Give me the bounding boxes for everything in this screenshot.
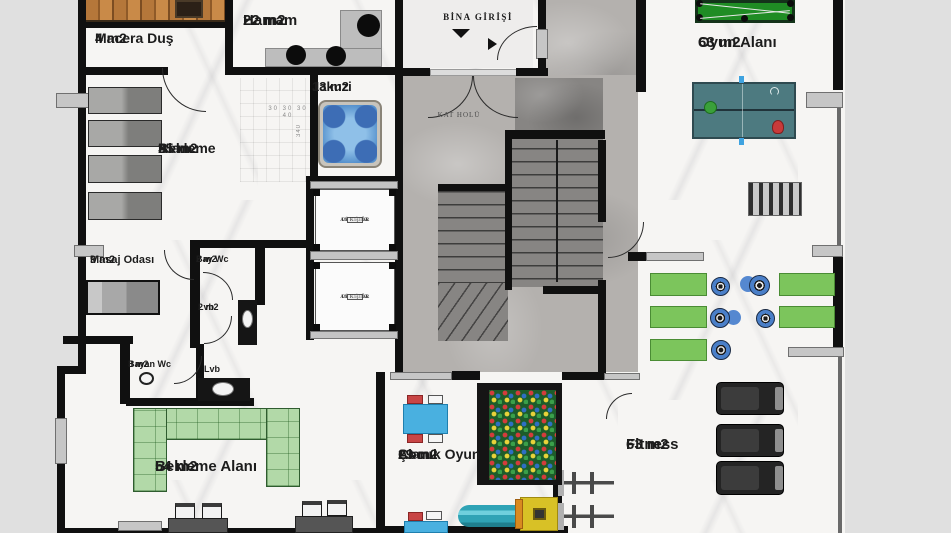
weight-plate	[749, 275, 770, 296]
weight-plate	[710, 308, 730, 328]
chair	[302, 501, 322, 517]
wall	[190, 240, 312, 248]
massage-table	[86, 280, 160, 315]
wall	[598, 140, 606, 222]
wall-post	[389, 189, 396, 196]
gym-machine-bar	[590, 505, 594, 528]
staircase-left-winder	[438, 283, 508, 341]
wall-post	[313, 324, 320, 331]
weight-plate	[711, 277, 730, 296]
window	[788, 347, 844, 357]
chair	[202, 503, 222, 519]
jacuzzi-water	[323, 105, 377, 163]
exercise-mat	[650, 339, 707, 361]
paddle-red-icon	[772, 120, 784, 134]
treadmill-console	[775, 387, 783, 410]
wall	[516, 68, 548, 76]
wall	[255, 245, 265, 305]
spin-icon	[770, 87, 779, 96]
exercise-mat	[650, 273, 707, 296]
treadmill-console	[775, 429, 783, 452]
wall	[225, 67, 403, 75]
billiard-pocket	[787, 14, 794, 21]
treadmill-deck	[721, 387, 759, 410]
window	[390, 372, 452, 380]
wall	[636, 0, 646, 92]
wall	[395, 0, 403, 75]
exercise-mat	[779, 306, 835, 328]
wall	[543, 286, 605, 294]
elevator-door	[310, 331, 398, 339]
lounger	[88, 87, 162, 114]
window	[56, 93, 90, 108]
direction-arrow-icon	[488, 38, 497, 50]
kids-chair-white	[428, 434, 443, 443]
wall	[628, 252, 646, 261]
kids-chair-red	[407, 434, 423, 443]
wall-thin	[838, 357, 842, 533]
kids-chair-red	[408, 512, 423, 521]
door-panel	[536, 29, 548, 59]
gym-machine-bar	[572, 505, 576, 528]
cafe-table	[295, 516, 353, 533]
exercise-mat	[650, 306, 707, 328]
entrance-label: BİNA GİRİŞİ	[426, 12, 530, 22]
sink	[212, 382, 234, 396]
wall	[598, 280, 606, 375]
hamam-basin	[286, 45, 306, 65]
door-panel	[604, 373, 640, 380]
gym-machine	[558, 503, 614, 530]
wall	[833, 257, 843, 347]
kids-chair-white	[426, 511, 442, 520]
door-panel	[812, 245, 843, 257]
kids-table	[403, 404, 448, 434]
wall-post	[389, 244, 396, 251]
wall-post	[389, 324, 396, 331]
dimension-label: 30 30 30 40	[262, 106, 314, 120]
hamam-basin	[357, 14, 380, 37]
hamam-bench-bottom	[265, 48, 382, 67]
pingpong-mark-icon	[739, 138, 744, 145]
window	[806, 92, 843, 108]
chair	[327, 500, 347, 516]
elevator-capacity: 10 Kişilik	[341, 294, 369, 300]
toilet-icon	[139, 372, 154, 385]
wall	[78, 67, 168, 75]
dumbbell-rack	[748, 182, 802, 216]
treadmill-deck	[721, 429, 759, 452]
wall	[225, 0, 233, 75]
wall	[78, 0, 86, 370]
hall-label: KAT HOLÜ	[430, 111, 488, 119]
elevator-door	[310, 251, 398, 260]
treadmill-console	[775, 466, 783, 490]
wall-post	[313, 262, 320, 269]
wall	[507, 130, 605, 139]
cafe-table	[168, 518, 228, 533]
wall	[395, 75, 403, 375]
paddle-green-icon	[704, 101, 717, 114]
sofa-right-arm	[266, 408, 300, 487]
wall-post	[313, 244, 320, 251]
window	[55, 418, 67, 464]
wall	[538, 0, 546, 30]
gym-machine-bar	[572, 472, 576, 494]
wall	[438, 184, 510, 191]
wall-post	[313, 189, 320, 196]
elevator-capacity: 10 Kişilik	[341, 217, 369, 223]
sink	[242, 310, 253, 328]
sofa-left-arm	[133, 408, 167, 492]
floor-plan: DİŞLİSİZ ASANSÖR 10 Kişilik DİŞLİSİZ ASA…	[0, 0, 951, 533]
wall	[452, 371, 480, 380]
lounger	[88, 192, 162, 220]
wall-post	[389, 262, 396, 269]
wall	[562, 372, 604, 380]
exercise-mat	[779, 273, 835, 296]
stair-landing	[515, 78, 603, 135]
chair	[175, 503, 195, 519]
elevator-2: DİŞLİSİZ ASANSÖR 10 Kişilik	[315, 262, 395, 331]
entrance-arrow-icon	[452, 29, 470, 38]
pingpong-center-line	[742, 84, 743, 137]
wall	[833, 0, 843, 90]
wall	[120, 338, 130, 404]
billiard-pocket	[787, 0, 794, 7]
kids-table	[404, 521, 448, 533]
gym-machine	[558, 470, 614, 496]
threshold	[430, 69, 518, 76]
elevator-door	[310, 181, 398, 189]
lounger	[88, 155, 162, 183]
dimension-label: 340	[296, 124, 306, 137]
weight-plate	[711, 340, 731, 360]
slide-platform-step	[515, 499, 523, 529]
staircase-left-upper	[438, 191, 508, 283]
door-panel	[646, 252, 704, 261]
elevator-1: DİŞLİSİZ ASANSÖR 10 Kişilik	[315, 189, 395, 251]
lounger	[88, 120, 162, 147]
wall	[376, 372, 385, 533]
weight-plate	[756, 309, 775, 328]
gym-machine-bar	[590, 472, 594, 494]
stair-rail	[556, 140, 558, 282]
wall	[505, 130, 512, 290]
slide-platform-hatch	[533, 508, 546, 520]
wall-thin	[837, 108, 841, 248]
treadmill-deck	[721, 466, 759, 490]
billiard-pocket	[741, 15, 748, 22]
window	[118, 521, 162, 531]
kids-chair-white	[428, 395, 443, 404]
pingpong-mark-icon	[739, 76, 744, 83]
sauna-stove	[175, 0, 203, 18]
ball-pit	[489, 390, 556, 480]
kids-chair-red	[407, 395, 423, 404]
hamam-basin	[326, 46, 346, 66]
sauna	[86, 0, 225, 22]
